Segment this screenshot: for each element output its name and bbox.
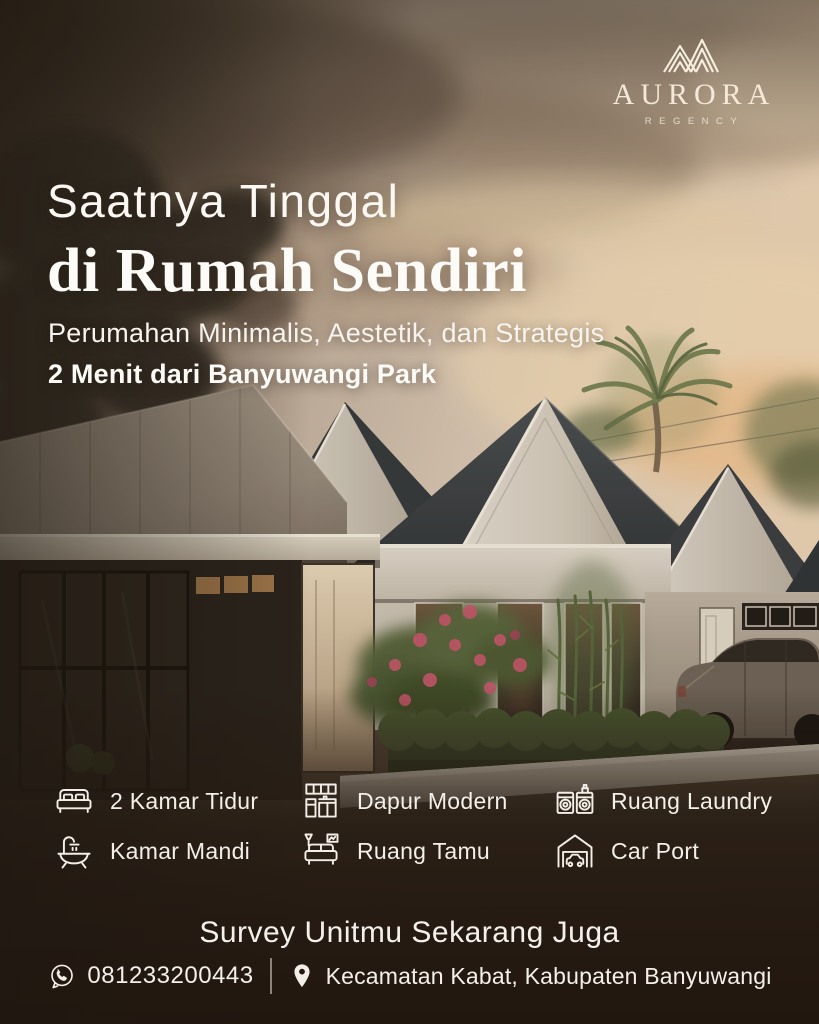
feature-column-2: Dapur Modern Ruang Tamu (299, 779, 553, 873)
tagline-line1: Perumahan Minimalis, Aestetik, dan Strat… (48, 318, 604, 349)
location-contact: Kecamatan Kabat, Kabupaten Banyuwangi (288, 962, 772, 990)
brand-subname: REGENCY (603, 116, 779, 127)
contact-divider (270, 958, 272, 994)
feature-label: Dapur Modern (357, 788, 508, 815)
feature-label: 2 Kamar Tidur (110, 788, 258, 815)
feature-carport: Car Port (553, 829, 819, 873)
sofa-icon (299, 829, 343, 873)
tagline: Perumahan Minimalis, Aestetik, dan Strat… (48, 318, 604, 390)
mountain-peaks-icon (658, 36, 724, 76)
feature-label: Ruang Laundry (611, 788, 772, 815)
tagline-line2: 2 Menit dari Banyuwangi Park (48, 359, 604, 390)
feature-list: 2 Kamar Tidur Kamar Mandi (0, 779, 819, 873)
phone-contact: 081233200443 (47, 961, 253, 991)
feature-column-1: 2 Kamar Tidur Kamar Mandi (52, 779, 299, 873)
phone-number: 081233200443 (87, 962, 253, 990)
contact-bar: 081233200443 Kecamatan Kabat, Kabupaten … (0, 958, 819, 994)
kitchen-icon (299, 779, 343, 823)
feature-label: Car Port (611, 838, 699, 865)
feature-column-3: Ruang Laundry Car Port (553, 779, 819, 873)
real-estate-poster: AURORA REGENCY Saatnya Tinggal di Rumah … (0, 0, 819, 1024)
laundry-icon (553, 779, 597, 823)
feature-bathroom: Kamar Mandi (52, 829, 299, 873)
whatsapp-icon (47, 961, 77, 991)
location-pin-icon (288, 962, 316, 990)
location-text: Kecamatan Kabat, Kabupaten Banyuwangi (326, 963, 772, 990)
feature-label: Ruang Tamu (357, 838, 490, 865)
bed-icon (52, 779, 96, 823)
headline: Saatnya Tinggal di Rumah Sendiri (47, 174, 527, 307)
cta-title: Survey Unitmu Sekarang Juga (0, 916, 819, 950)
feature-kitchen: Dapur Modern (299, 779, 553, 823)
garage-icon (553, 829, 597, 873)
feature-laundry: Ruang Laundry (553, 779, 819, 823)
bathtub-icon (52, 829, 96, 873)
brand-logo: AURORA REGENCY (603, 36, 779, 127)
headline-line1: Saatnya Tinggal (47, 174, 527, 228)
brand-name: AURORA (603, 78, 779, 112)
headline-line2: di Rumah Sendiri (47, 236, 527, 307)
feature-bedrooms: 2 Kamar Tidur (52, 779, 299, 823)
feature-living-room: Ruang Tamu (299, 829, 553, 873)
feature-label: Kamar Mandi (110, 838, 250, 865)
